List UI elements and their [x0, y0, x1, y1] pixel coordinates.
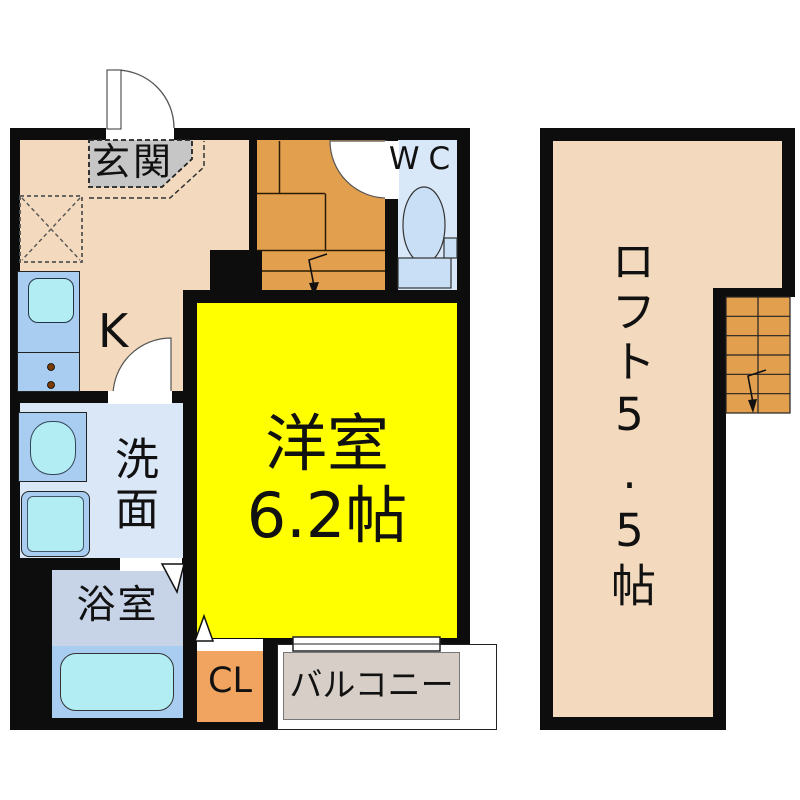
washbasin-unit	[18, 412, 87, 482]
balcony-label: バルコニー	[283, 668, 460, 701]
loft-room-upper	[553, 141, 782, 288]
entrance-label: 玄関	[92, 143, 174, 181]
washbasin-bowl	[30, 421, 76, 475]
closet-label: CL	[197, 664, 263, 699]
wc-label: WC	[388, 144, 460, 175]
washing-machine	[21, 491, 90, 557]
bathtub	[60, 653, 174, 711]
washing-machine-drum	[27, 496, 84, 552]
main-room-area: 6.2帖	[197, 480, 457, 552]
washroom-label: 洗面	[110, 436, 154, 536]
counter-divider	[18, 352, 79, 353]
main-room-label: 洋室 6.2帖	[197, 408, 457, 552]
kitchen-sink	[28, 278, 74, 323]
loft-notch	[726, 413, 800, 730]
kitchen-label: K	[98, 308, 128, 354]
loft-stairs	[726, 297, 790, 413]
main-room-name: 洋室	[197, 408, 457, 480]
wall-main-room-left	[183, 303, 197, 730]
loft-label: ロフト5.5帖	[607, 238, 652, 612]
floor-plan: 玄関 K WC 洋室 6.2帖 洗面 浴室 CL バルコニー ロフト5.5帖	[0, 0, 800, 800]
wall-band-under-stairs	[183, 290, 470, 303]
kitchen-counter	[17, 271, 80, 392]
bathroom-label: 浴室	[52, 586, 183, 625]
stairs-landing	[257, 140, 385, 293]
loft-notch-upper	[790, 297, 800, 415]
